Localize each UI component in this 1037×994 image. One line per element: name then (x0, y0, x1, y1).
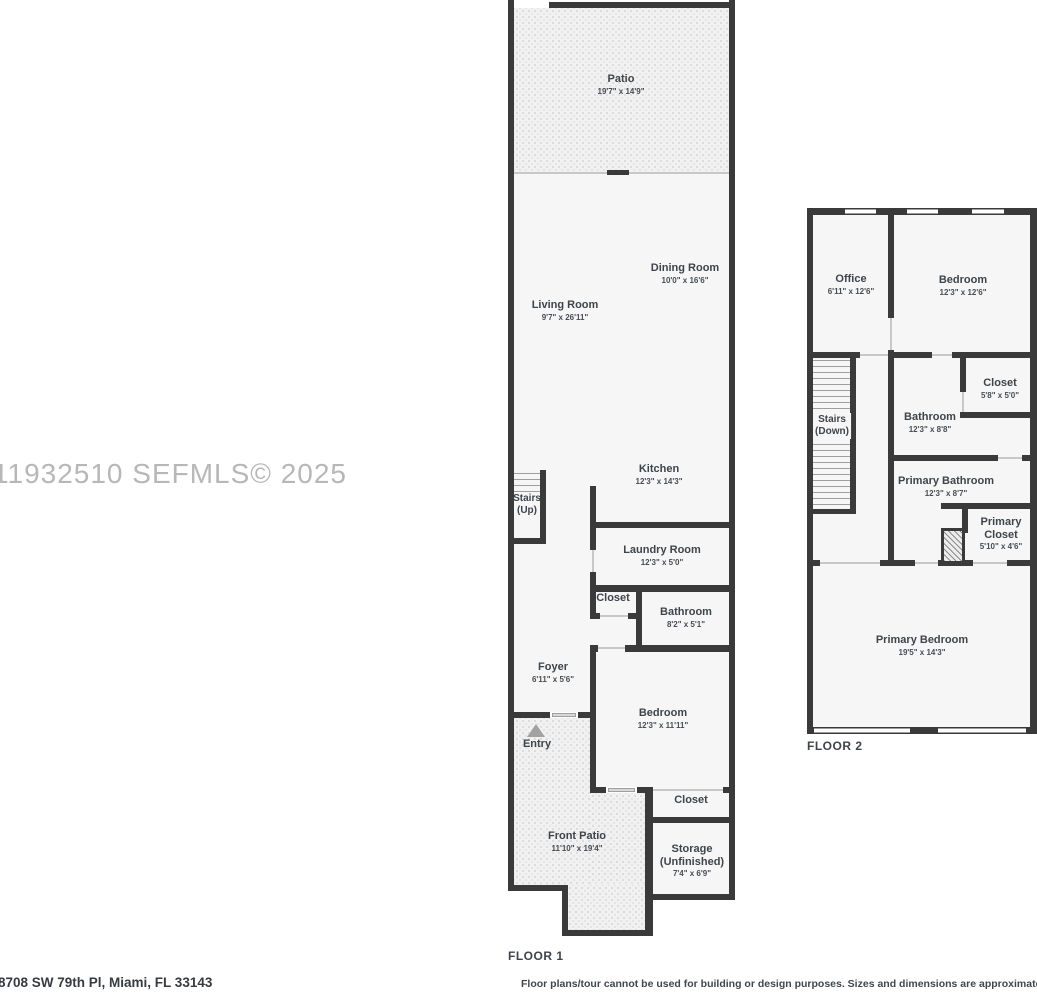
door-leaf (608, 788, 635, 792)
room-label-bathroom: Bathroom 8'2" x 5'1" (660, 606, 712, 630)
room-name: Entry (523, 738, 551, 751)
room-label-bedroom-closet: Closet (674, 794, 708, 807)
wall (723, 787, 735, 793)
room-dims: 6'11" x 5'6" (532, 674, 574, 685)
room-name: Stairs (815, 414, 849, 426)
room-label-laundry-room: Laundry Room 12'3" x 5'0" (623, 544, 701, 568)
wall (645, 894, 735, 900)
room-dims: 5'8" x 5'0" (981, 390, 1019, 401)
wall (807, 560, 820, 566)
patio-slider-door (607, 170, 629, 175)
stairs-treads (514, 473, 540, 492)
room-dims: 11'10" x 19'4" (548, 843, 606, 854)
room-label-living-room: Living Room 9'7" x 26'11" (532, 299, 599, 323)
window (938, 728, 1026, 733)
wall (645, 817, 735, 823)
wall (888, 215, 894, 318)
wall (508, 712, 550, 718)
floor1-tag: FLOOR 1 (508, 949, 564, 963)
wall (508, 0, 514, 890)
wall (1030, 208, 1037, 734)
room-name: Stairs (513, 493, 541, 505)
entry-arrow-icon (527, 724, 545, 737)
room-name: Bathroom (904, 411, 956, 424)
wall (508, 538, 546, 544)
wall (590, 787, 606, 793)
room-name: Primary Closet (970, 516, 1032, 541)
window (972, 209, 1004, 214)
room-dims: 12'3" x 14'3" (636, 476, 683, 487)
wall (625, 645, 735, 652)
room-name: Bedroom (939, 274, 987, 287)
room-dims: 19'7" x 14'9" (598, 86, 645, 97)
door-opening (600, 615, 628, 617)
room-name: Closet (674, 794, 708, 807)
room-label-office: Office 6'11" x 12'6" (828, 273, 875, 297)
room-name: Closet (981, 377, 1019, 390)
wall (562, 885, 568, 936)
door-opening (820, 562, 880, 564)
room-name: Living Room (532, 299, 599, 312)
wall (590, 522, 735, 528)
wall (508, 885, 567, 891)
room-dims: 12'3" x 12'6" (939, 287, 987, 298)
wall (807, 509, 856, 514)
wall (1022, 455, 1037, 461)
room-name: Primary Bathroom (898, 475, 994, 488)
mls-watermark: 11932510 SEFMLS© 2025 (0, 458, 347, 490)
floorplan-canvas: 11932510 SEFMLS© 2025 Pa (0, 0, 1037, 994)
room-name: Patio (598, 73, 645, 86)
door-opening (890, 318, 892, 350)
room-name: Front Patio (548, 830, 606, 843)
room-label-kitchen: Kitchen 12'3" x 14'3" (636, 463, 683, 487)
wall (729, 0, 735, 900)
room-dims: 7'4" x 6'9" (660, 868, 724, 879)
floor2-tag: FLOOR 2 (807, 739, 863, 753)
room-name: Bathroom (660, 606, 712, 619)
bedroom-patio-door (606, 787, 637, 793)
wall (562, 930, 653, 936)
door-opening (973, 562, 1007, 564)
door-opening (915, 562, 938, 564)
wall (590, 528, 596, 550)
room-label-stairs-up: Stairs (Up) (513, 493, 541, 517)
front-patio-area (567, 885, 645, 930)
room-dims: 10'0" x 16'6" (651, 275, 719, 286)
wall (636, 592, 642, 650)
room-dims: 12'3" x 8'7" (898, 488, 994, 499)
room-name: Foyer (532, 661, 574, 674)
room-label-primary-closet: Primary Closet 5'10" x 4'6" (970, 516, 1032, 552)
closet-opening (653, 789, 723, 791)
window (907, 209, 938, 214)
room-label-stairs-down: Stairs (Down) (813, 413, 851, 439)
room-name: Closet (596, 592, 630, 605)
room-name: (Down) (815, 426, 849, 438)
room-label-dining-room: Dining Room 10'0" x 16'6" (651, 262, 719, 286)
wall (645, 787, 653, 936)
room-name: Primary Bedroom (876, 634, 968, 647)
entry-door (550, 712, 578, 718)
property-address: 8708 SW 79th Pl, Miami, FL 33143 (0, 975, 212, 990)
room-name: Laundry Room (623, 544, 701, 557)
room-name: (Unfinished) (660, 856, 724, 869)
room-label-patio: Patio 19'7" x 14'9" (598, 73, 645, 97)
room-name: Kitchen (636, 463, 683, 476)
room-name: Bedroom (638, 707, 689, 720)
door-opening (998, 457, 1022, 459)
door-leaf (552, 713, 577, 717)
room-dims: 5'10" x 4'6" (970, 541, 1032, 552)
window (845, 209, 876, 214)
door-opening (962, 392, 964, 412)
door-opening (598, 647, 625, 649)
wall (549, 2, 735, 8)
door-opening (860, 354, 888, 356)
wall (960, 412, 1037, 418)
room-name: Storage (660, 843, 724, 856)
room-name: Dining Room (651, 262, 719, 275)
room-label-foyer: Foyer 6'11" x 5'6" (532, 661, 574, 685)
wall (888, 455, 998, 461)
room-dims: 6'11" x 12'6" (828, 286, 875, 297)
door-opening (932, 354, 952, 356)
wall (590, 572, 596, 585)
room-dims: 12'3" x 5'0" (623, 557, 701, 568)
wall (1007, 560, 1037, 566)
room-label-bedroom2: Bedroom 12'3" x 12'6" (939, 274, 987, 298)
door-opening (592, 550, 594, 572)
wall (960, 358, 966, 392)
disclaimer-text: Floor plans/tour cannot be used for buil… (521, 978, 1037, 990)
wall (880, 560, 915, 566)
wall (628, 613, 642, 619)
room-name: Office (828, 273, 875, 286)
room-dims: 9'7" x 26'11" (532, 312, 599, 323)
wall (941, 503, 1037, 509)
wall (578, 712, 596, 718)
room-name: (Up) (513, 505, 541, 517)
shower-hatch (941, 528, 965, 564)
room-label-entry: Entry (523, 738, 551, 751)
room-dims: 19'5" x 14'3" (876, 647, 968, 658)
wall (888, 352, 932, 358)
room-dims: 8'2" x 5'1" (660, 619, 712, 630)
room-label-closet2: Closet 5'8" x 5'0" (981, 377, 1019, 401)
room-label-primary-bedroom: Primary Bedroom 19'5" x 14'3" (876, 634, 968, 658)
room-dims: 12'3" x 8'8" (904, 424, 956, 435)
wall (590, 645, 596, 793)
window (814, 728, 910, 733)
wall (590, 585, 735, 592)
room-label-bathroom2: Bathroom 12'3" x 8'8" (904, 411, 956, 435)
room-label-hall-closet: Closet (596, 592, 630, 605)
room-label-storage: Storage (Unfinished) 7'4" x 6'9" (660, 843, 724, 879)
room-label-front-patio: Front Patio 11'10" x 19'4" (548, 830, 606, 854)
wall (590, 613, 600, 619)
room-dims: 12'3" x 11'11" (638, 720, 689, 731)
room-label-primary-bathroom: Primary Bathroom 12'3" x 8'7" (898, 475, 994, 499)
room-label-bedroom: Bedroom 12'3" x 11'11" (638, 707, 689, 731)
